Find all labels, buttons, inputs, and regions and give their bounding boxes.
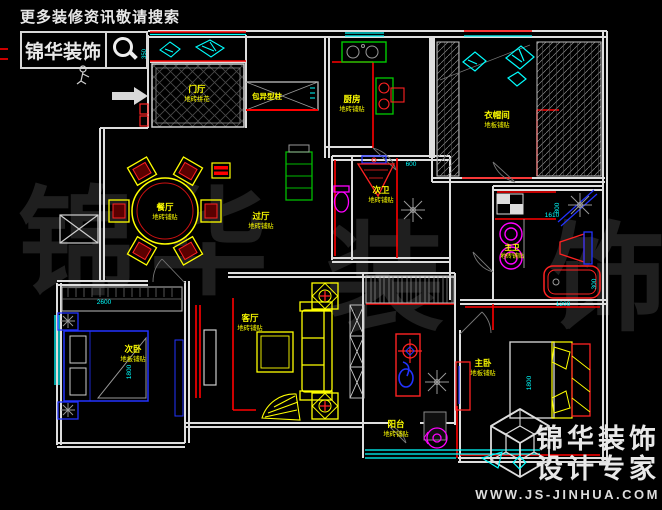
wardrobe: [62, 287, 182, 311]
kitchen-sink: [342, 42, 386, 62]
tv-cabinet: [204, 330, 216, 385]
room-finish: 地砖拼花: [184, 94, 210, 103]
flue-cabinet: [350, 305, 364, 398]
room-finish: 地砖铺贴: [383, 429, 409, 438]
ceiling-light: [398, 339, 422, 363]
room-finish: 地板铺贴: [120, 354, 146, 363]
door-frame-marks: [140, 104, 148, 126]
room-bed2: 次卧 地板铺贴 2600 1800: [58, 259, 185, 419]
room-finish: 地砖铺贴: [248, 221, 274, 230]
bed: [64, 331, 148, 401]
room-label: 阳台: [387, 419, 405, 429]
door-swing: [460, 312, 491, 334]
room-finish: 地砖铺贴: [500, 252, 524, 260]
coffee-table: [257, 332, 293, 372]
wardrobe-right: [537, 42, 601, 176]
toilet: [560, 232, 592, 264]
dresser: [456, 362, 470, 410]
room-cloak: 衣帽间 地板铺贴: [437, 42, 601, 182]
brand-search-box[interactable]: 锦华装饰: [20, 31, 148, 69]
header: 更多装修资讯敬请搜索 锦华装饰: [20, 6, 180, 69]
search-tagline: 更多装修资讯敬请搜索: [20, 6, 180, 27]
plant-icon: [401, 198, 425, 222]
door-swing: [473, 252, 493, 272]
room-finish: 地板铺贴: [484, 120, 510, 129]
plant-icon: [425, 370, 449, 394]
column-note-text: 包异型柱: [251, 91, 282, 101]
room-hall: 过厅 地砖铺贴: [212, 145, 312, 230]
cad-floorplan-screenshot: { "header": { "tagline": "更多装修资讯敬请搜索", "…: [0, 0, 662, 510]
stove: [376, 78, 404, 114]
room-label: 厨房: [343, 94, 360, 104]
room-finish: 地砖铺贴: [152, 212, 178, 221]
bath-cabinet: [497, 194, 523, 214]
room-label: 主卧: [474, 358, 492, 368]
room-label: 门厅: [188, 84, 206, 94]
footer-brand: 锦华装饰 设计专家 WWW.JS-JINHUA.COM: [475, 424, 660, 502]
room-label: 次卧: [124, 344, 142, 354]
dimension: 2600: [97, 299, 112, 306]
section-marker: [212, 163, 230, 178]
wardrobe-left: [437, 42, 459, 176]
room-label: 主卫: [505, 242, 520, 252]
room-study: [350, 276, 454, 398]
dimension: 800: [554, 202, 561, 213]
bookshelf: [366, 276, 454, 303]
room-label: 餐厅: [155, 202, 174, 212]
office-chair: [399, 362, 413, 387]
plant-fan: [262, 394, 300, 420]
room-living: 客厅 地砖铺贴: [204, 283, 338, 420]
brand-name: 锦华装饰: [22, 37, 105, 64]
corner-shower: [558, 190, 597, 226]
room-finish: 地砖铺贴: [339, 104, 365, 113]
room-finish: 地砖铺贴: [368, 195, 394, 204]
entry-direction-arrow: [112, 87, 148, 105]
left-edge-tick: [0, 58, 8, 60]
sofa: [300, 302, 332, 400]
speaker-icon: [312, 283, 338, 309]
room-label: 次卫: [372, 185, 390, 195]
clothes-icons: [463, 46, 534, 86]
footer-website[interactable]: WWW.JS-JINHUA.COM: [475, 487, 660, 502]
radiator: [60, 215, 98, 243]
footer-brand-name: 锦华装饰: [475, 424, 660, 454]
hall-cabinet: [286, 145, 312, 200]
door-swing: [153, 259, 185, 283]
dimension: 600: [406, 161, 417, 168]
tall-cabinet: [175, 340, 183, 416]
footer-slogan: 设计专家: [475, 454, 660, 484]
toilet: [334, 186, 349, 212]
room-finish: 地砖铺贴: [237, 323, 263, 332]
dimension: 1200: [556, 301, 571, 308]
dimension: 1800: [526, 375, 533, 390]
dimension: 300: [591, 278, 598, 289]
column-note: 包异型柱: [246, 82, 318, 110]
room-label: 过厅: [252, 211, 270, 221]
bed: [510, 342, 590, 418]
dimension: 1800: [126, 364, 133, 379]
room-bath2: 次卫 地砖铺贴 600: [334, 156, 425, 222]
room-master: 主卧 地板铺贴 1800: [456, 312, 590, 418]
room-balcony: 阳台 地砖铺贴: [383, 412, 447, 448]
room-label: 客厅: [240, 313, 259, 323]
left-edge-tick: [0, 48, 8, 50]
room-label: 衣帽间: [484, 110, 510, 120]
search-icon[interactable]: [107, 33, 141, 67]
room-finish: 地板铺贴: [470, 368, 496, 377]
room-dining: 餐厅 地砖铺贴: [60, 157, 221, 265]
speaker-icon: [312, 393, 338, 419]
